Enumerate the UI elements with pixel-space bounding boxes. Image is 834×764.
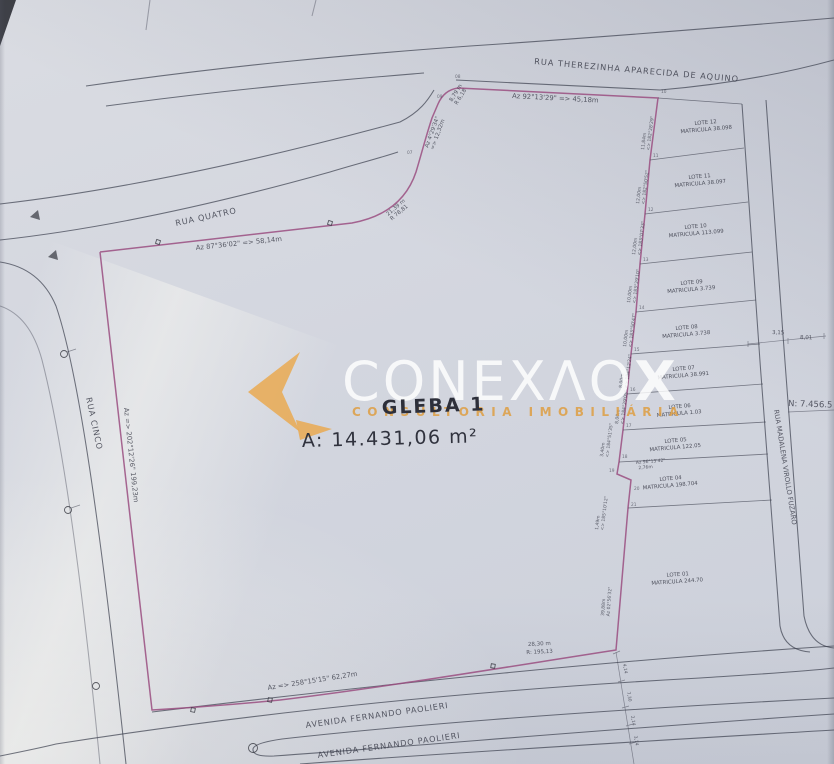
lot-top-edge xyxy=(658,98,742,104)
width-tick-line xyxy=(748,333,826,347)
lot-divider-14 xyxy=(636,300,756,312)
bearing-label-bottom: Az => 258°15'15" 62,27m xyxy=(267,670,358,692)
vertex-number: 10 xyxy=(661,89,667,95)
lot-label: LOTE 09 MATRICULA 3.739 xyxy=(666,278,716,295)
vertex-number: 20 xyxy=(634,486,640,492)
lot-matricula: MATRICULA 244.70 xyxy=(651,577,704,587)
lot-label: LOTE 04 MATRICULA 198.704 xyxy=(642,474,699,492)
frontage-bearing: <> 185°10'12" xyxy=(599,496,609,531)
vertex-number: 17 xyxy=(626,423,632,429)
street-label-madalena: RUA MADALENA VIROLLO FUZARO xyxy=(772,409,798,525)
road-quatro-upper-edge xyxy=(0,90,434,204)
road-arrow-icon xyxy=(30,210,40,220)
plat-drawing: RUA THEREZINHA APARECIDA DE AQUINO RUA Q… xyxy=(0,0,834,764)
bottom-curve-label: 28,30 m R: 195,13 xyxy=(526,641,554,656)
vertex-number: 18 xyxy=(622,454,628,460)
photo-right-edge-shade xyxy=(827,0,834,764)
marker-circle-stem xyxy=(71,505,80,508)
frontage-label: 10,00m <> 183°29'10" xyxy=(626,268,642,304)
lot-matricula: MATRICULA 198.704 xyxy=(643,481,699,492)
parcel-title: GLEBA 1 xyxy=(381,393,485,419)
frontage-label: 3,40m <> 184°51'35" xyxy=(599,422,615,458)
chain-dim: 7,30 xyxy=(625,691,633,702)
road-top-lower-edge-left xyxy=(106,73,424,106)
frontage-label: 11,84m <> 182°28'29" xyxy=(640,115,656,151)
vertex-number: 11 xyxy=(653,153,659,159)
lot-matricula: MATRICULA 38.098 xyxy=(680,125,733,136)
frontage-bearing: <> 184°51'35" xyxy=(604,423,614,458)
road-arrow-icon xyxy=(48,250,58,260)
lot-label: LOTE 01 MATRICULA 244.70 xyxy=(651,570,704,587)
chain-dim: 3,74 xyxy=(632,735,640,746)
curve1-label: 8,79 m R 6,18 xyxy=(449,83,469,106)
marker-circle-icon xyxy=(61,351,68,358)
road-top-stub-2 xyxy=(312,0,316,16)
street-label-avenida-1: AVENIDA FERNANDO PAOLIERI xyxy=(305,700,449,730)
lot-divider-13 xyxy=(640,252,752,264)
frontage-label: 10,00m <> 183°50'47" xyxy=(622,312,638,348)
frontage-label: 12,00m <> 182°50'52" xyxy=(635,169,651,205)
marker-square-icon xyxy=(268,698,273,703)
road-top-stub-1 xyxy=(146,0,150,30)
frontage-bearing: Az 02°56'32" xyxy=(605,587,613,617)
marker-square-icon xyxy=(155,239,160,244)
lot-matricula: MATRICULA 3.738 xyxy=(662,330,711,340)
marker-square-icon xyxy=(191,708,196,713)
vertex-number: 08 xyxy=(455,74,461,80)
street-label-avenida-2: AVENIDA FERNANDO PAOLIERI xyxy=(317,730,461,760)
street-label-cinco: RUA CINCO xyxy=(84,396,105,450)
bearing-label-quatro: Az 87°36'02" => 58,14m xyxy=(195,235,282,252)
vertex-number: 19 xyxy=(609,468,615,474)
lot-matricula: MATRICULA 38.097 xyxy=(674,179,726,189)
lot-matricula: MATRICULA 122.05 xyxy=(649,443,701,453)
marker-square-icon xyxy=(491,664,496,669)
survey-symbols xyxy=(30,210,495,753)
lot-divider-17 xyxy=(623,422,766,430)
lot-label: LOTE 11 MATRICULA 38.097 xyxy=(674,172,727,189)
road-madalena-west-edge xyxy=(742,104,810,652)
road-cinco-far-edge xyxy=(0,306,100,764)
lot-label: LOTE 05 MATRICULA 122.05 xyxy=(649,436,702,453)
brand-logo-icon xyxy=(248,352,300,432)
jog-label: Az 96°13'42" 2,76m xyxy=(636,457,666,471)
lot-label: LOTE 12 MATRICULA 38.098 xyxy=(680,118,733,136)
frontage-label: 1,49m <> 185°10'12" xyxy=(594,495,610,531)
bottom-curve-radius: R: 195,13 xyxy=(526,649,553,656)
parcel-area: A: 14.431,06 m² xyxy=(302,425,479,452)
road-cinco-outer-edge xyxy=(0,262,126,764)
north-coordinate: N: 7.456.5 xyxy=(788,399,833,411)
vertex-number: 09 xyxy=(437,94,443,100)
vertex-number: 14 xyxy=(639,305,645,311)
jog-length: 2,76m xyxy=(638,464,653,471)
width-tick-b: 8,01 xyxy=(800,335,812,341)
lot-label: LOTE 10 MATRICULA 113.099 xyxy=(668,222,725,240)
lot-divider-11 xyxy=(650,148,744,160)
frontage-label: 39,88m Az 02°56'32" xyxy=(600,586,614,616)
chain-dim: 4,14 xyxy=(621,663,629,674)
bearing-label-cinco: Az => 202°12'26" 199,23m xyxy=(122,407,140,503)
curve2-label: 21,39 m R 78,81 xyxy=(385,198,410,222)
lot-matricula: MATRICULA 3.739 xyxy=(667,285,716,295)
lot-matricula: MATRICULA 113.099 xyxy=(669,229,725,240)
vertex-number: 21 xyxy=(631,502,637,508)
width-tick-a: 3,15 xyxy=(772,330,785,336)
vertex-number: 13 xyxy=(643,257,649,263)
plat-photo: RUA THEREZINHA APARECIDA DE AQUINO RUA Q… xyxy=(0,0,834,764)
frontage-label: 12,00m <> 183°07'33" xyxy=(631,220,647,256)
brand-wordmark-x: X xyxy=(634,350,679,413)
bottom-curve-length: 28,30 m xyxy=(528,641,551,648)
marker-square-icon xyxy=(327,220,332,225)
street-label-top: RUA THEREZINHA APARECIDA DE AQUINO xyxy=(534,56,740,84)
lot-label: LOTE 08 MATRICULA 3.738 xyxy=(661,323,711,340)
road-madalena-east-edge xyxy=(766,100,834,648)
lot-divider-21 xyxy=(628,500,772,508)
vertex-number: 07 xyxy=(407,150,413,156)
marker-circle-icon xyxy=(93,683,100,690)
vertex-number: 12 xyxy=(648,207,654,213)
photo-left-edge-shade xyxy=(0,0,5,764)
lot-divider-12 xyxy=(645,202,748,214)
